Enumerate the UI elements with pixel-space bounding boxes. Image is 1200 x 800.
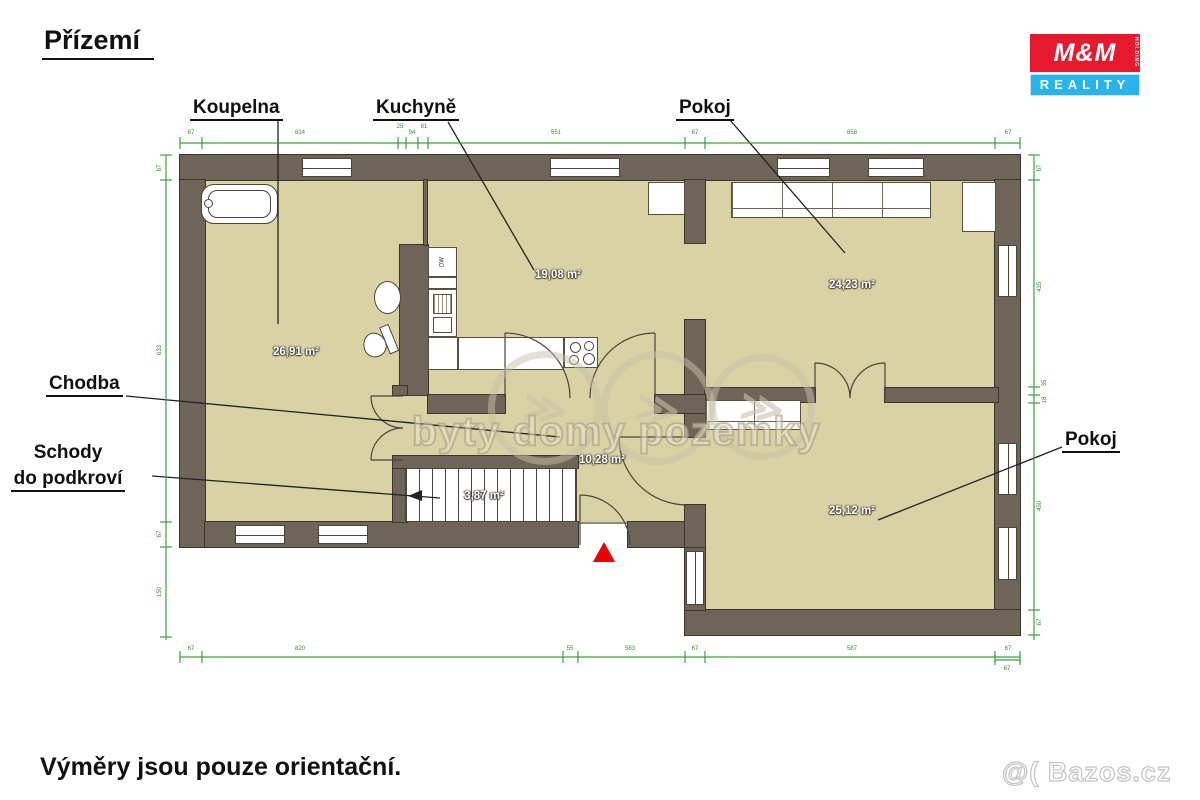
window-bathroom-top — [302, 158, 352, 177]
burner-icon — [583, 353, 595, 365]
dim-label: 67 — [1005, 646, 1012, 652]
wall-kitchen-room-a — [685, 180, 705, 243]
burner-icon — [570, 342, 581, 353]
label-chodba: Chodba — [46, 373, 123, 395]
floor-plan: Přízemí Výměry jsou pouze orientační. @(… — [0, 0, 1200, 800]
window-room-right-3 — [998, 527, 1017, 580]
kitchen-sink-basin — [433, 294, 452, 314]
dim-label: 633 — [157, 345, 163, 355]
bathtub — [201, 184, 278, 224]
label-schody-line2: do podkroví — [6, 466, 130, 492]
area-pokoj-top: 24,23 m² — [829, 279, 875, 291]
area-kuchyne: 19,08 m² — [535, 269, 581, 281]
label-pokoj-top: Pokoj — [676, 97, 734, 119]
logo-mm-text: M&M — [1054, 39, 1117, 68]
dim-label: 67 — [1005, 130, 1012, 136]
dim-label: 824 — [295, 130, 305, 136]
window-bottom-room-left — [686, 551, 704, 605]
dim-label: 81 — [421, 124, 428, 130]
corner-closet-top-room — [962, 182, 996, 232]
wall-bath-kitchen-thin — [424, 180, 427, 245]
area-chodba: 10,28 m² — [579, 454, 625, 466]
kitchen-sink-tray — [433, 317, 452, 333]
footer-note: Výměry jsou pouze orientační. — [40, 753, 401, 782]
wall-bottom-right — [685, 610, 1020, 635]
burner-icon — [584, 341, 594, 351]
floor-opening-kitchen-room — [685, 243, 705, 320]
counter-segment — [428, 277, 457, 289]
bathtub-inner — [208, 190, 271, 218]
label-schody: Schody do podkroví — [6, 440, 130, 491]
dim-label: 67 — [1037, 165, 1043, 172]
label-kuchyne: Kuchyně — [373, 97, 459, 119]
watermark-text: byty domy pozemky — [412, 408, 821, 455]
dim-label: 435 — [1037, 282, 1043, 292]
dim-label: 551 — [551, 130, 561, 136]
window-room-right-1 — [998, 245, 1017, 297]
dim-label: 67 — [1037, 619, 1043, 626]
dim-label: 67 — [188, 646, 195, 652]
label-schody-line1: Schody — [6, 440, 130, 466]
wall-left — [180, 180, 205, 547]
dim-label: 820 — [295, 646, 305, 652]
area-schody: 3,87 m² — [464, 490, 504, 502]
dim-label: 67 — [692, 130, 699, 136]
dim-label: 67 — [188, 130, 195, 136]
dim-label: 858 — [847, 130, 857, 136]
label-koupelna: Koupelna — [190, 97, 283, 119]
dim-label: 150 — [157, 587, 163, 597]
dim-label: 55 — [567, 646, 574, 652]
wall-bath-kitchen — [400, 245, 428, 395]
entrance-marker — [593, 542, 615, 562]
washbasin — [374, 281, 401, 314]
dim-label: 18 — [1042, 397, 1048, 404]
dim-label: 67 — [1004, 666, 1011, 672]
floor-opening-rooms-door — [815, 388, 885, 402]
page-title: Přízemí — [42, 25, 154, 60]
dishwasher: DW — [428, 247, 457, 277]
label-pokoj-bottom: Pokoj — [1062, 429, 1120, 451]
window-bathroom-bottom-2 — [318, 525, 368, 544]
window-room-top-2 — [868, 158, 924, 177]
counter-corner — [428, 337, 458, 370]
area-koupelna: 26,91 m² — [273, 346, 319, 358]
dim-label: 450 — [1037, 501, 1043, 511]
dim-label: 25 — [397, 124, 404, 130]
logo-reality-text: REALITY — [1030, 74, 1140, 96]
dim-label: 67 — [157, 531, 163, 538]
wall-bathdoor-stub-top — [393, 386, 407, 395]
window-kitchen-top — [550, 158, 620, 177]
logo-holding-text: HOLDING — [1133, 37, 1139, 67]
dim-label: 35 — [1042, 380, 1048, 387]
wall-rooms-divider-b — [885, 388, 998, 402]
dim-label: 587 — [847, 646, 857, 652]
window-room-right-2 — [998, 443, 1017, 495]
dim-label: 67 — [157, 165, 163, 172]
dim-label: 67 — [692, 646, 699, 652]
area-pokoj-bottom: 25,12 m² — [829, 505, 875, 517]
kitchen-sink-unit — [428, 289, 457, 337]
wardrobe-top-room — [731, 182, 931, 218]
window-room-top-1 — [777, 158, 830, 177]
bathtub-faucet — [204, 199, 213, 208]
bazos-watermark: @( Bazos.cz — [1002, 757, 1171, 788]
window-bathroom-bottom-1 — [235, 525, 285, 544]
dishwasher-label: DW — [429, 249, 457, 276]
wall-hall-room-b — [685, 505, 705, 547]
dim-label: 94 — [409, 130, 416, 136]
logo-red-box: M&M HOLDING — [1030, 34, 1140, 72]
fridge — [648, 182, 685, 215]
mm-reality-logo: M&M HOLDING REALITY — [1030, 34, 1140, 96]
dim-label: 583 — [625, 646, 635, 652]
